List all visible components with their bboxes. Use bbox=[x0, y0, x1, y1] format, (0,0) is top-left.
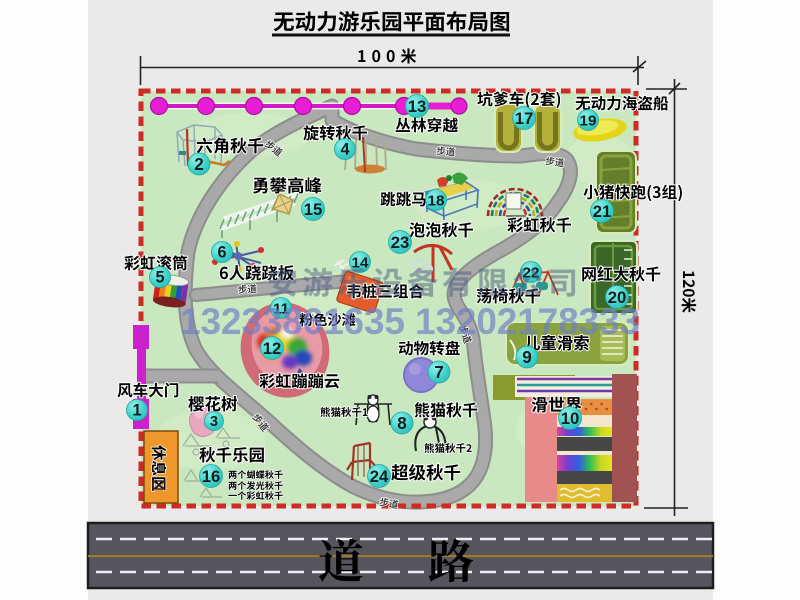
svg-text:19: 19 bbox=[580, 112, 597, 129]
svg-text:18: 18 bbox=[428, 192, 445, 209]
svg-text:5: 5 bbox=[155, 269, 164, 287]
svg-text:8: 8 bbox=[397, 414, 407, 433]
svg-text:3: 3 bbox=[210, 414, 218, 430]
svg-text:13: 13 bbox=[408, 97, 427, 116]
svg-text:17: 17 bbox=[515, 109, 534, 128]
svg-text:6: 6 bbox=[217, 244, 226, 262]
svg-text:24: 24 bbox=[370, 467, 389, 486]
svg-text:10: 10 bbox=[561, 409, 580, 428]
svg-text:7: 7 bbox=[434, 363, 444, 382]
svg-text:21: 21 bbox=[593, 202, 612, 221]
svg-text:16: 16 bbox=[202, 467, 221, 486]
svg-text:13233861635 13202178333: 13233861635 13202178333 bbox=[180, 301, 640, 342]
svg-text:1: 1 bbox=[132, 402, 141, 420]
svg-text:15: 15 bbox=[304, 200, 323, 219]
svg-text:9: 9 bbox=[522, 348, 532, 367]
svg-text:23: 23 bbox=[391, 233, 410, 252]
svg-text:2: 2 bbox=[194, 155, 204, 174]
svg-text:4: 4 bbox=[340, 141, 349, 159]
